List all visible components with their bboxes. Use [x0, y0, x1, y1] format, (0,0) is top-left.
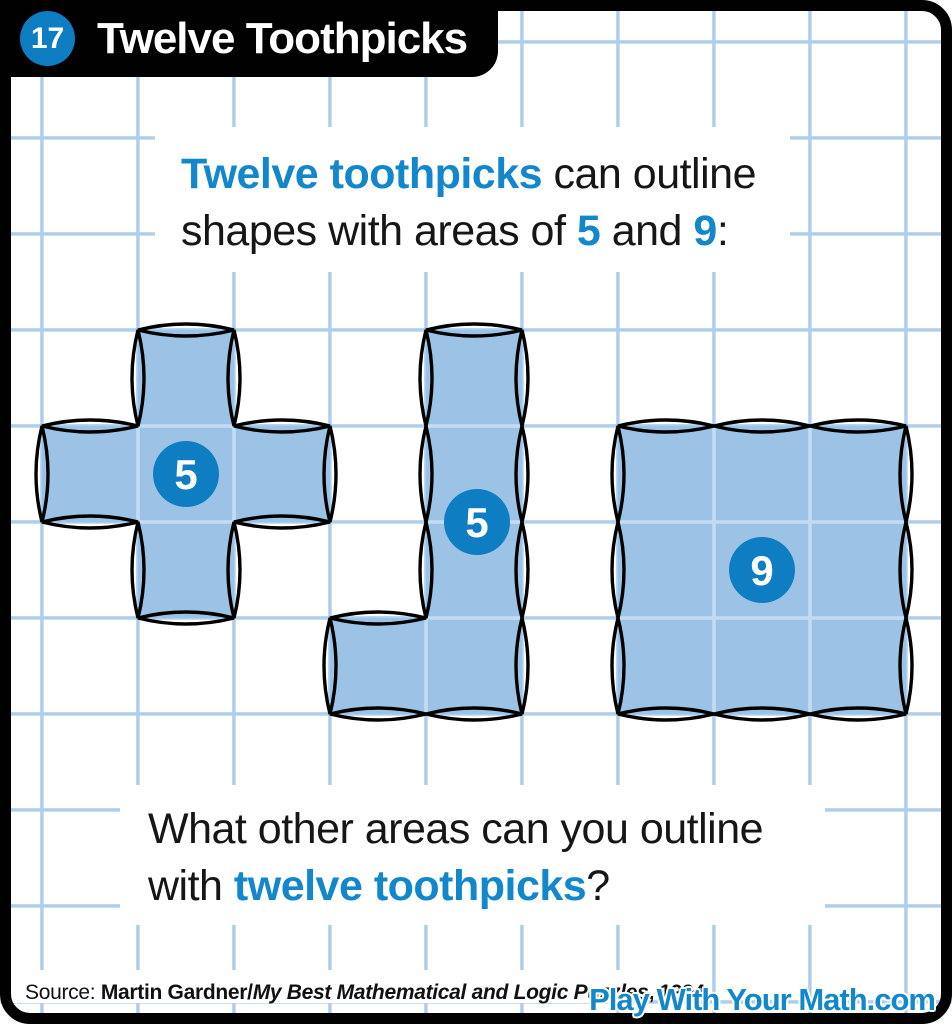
shape-cell: [618, 522, 714, 618]
question-text: What other areas can you outline with tw…: [148, 801, 763, 915]
puzzle-card: 559 Twelve toothpicks can outline shapes…: [0, 0, 952, 1024]
shape-cell: [618, 426, 714, 522]
shape-cell: [234, 426, 330, 522]
intro-line-1: Twelve toothpicks can outline: [181, 146, 756, 203]
text-segment: What other areas can you outline: [148, 805, 763, 853]
question-line-2: with twelve toothpicks?: [148, 858, 763, 915]
shape-l-pentomino: 5: [324, 324, 528, 720]
shape-cell: [42, 426, 138, 522]
brand-link[interactable]: Play With Your Math.com: [589, 982, 935, 1018]
question-line-1: What other areas can you outline: [148, 801, 763, 858]
text-segment: with: [148, 862, 234, 910]
puzzle-number-badge: 17: [20, 11, 75, 66]
shape-cell: [426, 618, 522, 714]
shape-cell: [714, 426, 810, 522]
intro-text: Twelve toothpicks can outline shapes wit…: [181, 146, 756, 260]
text-segment: ?: [586, 862, 609, 910]
text-segment: twelve toothpicks: [234, 862, 586, 910]
area-badge-label: 5: [174, 451, 197, 498]
area-badge-label: 9: [750, 547, 773, 594]
text-segment: and: [600, 207, 693, 255]
header-bar: 17 Twelve Toothpicks: [0, 0, 498, 77]
shape-three-by-three-square: 9: [612, 420, 912, 720]
text-segment: Source:: [25, 981, 101, 1004]
text-segment: can outline: [542, 150, 756, 198]
text-segment: 9: [693, 207, 716, 255]
page-title: Twelve Toothpicks: [97, 14, 467, 64]
shape-cell: [330, 618, 426, 714]
intro-line-2: shapes with areas of 5 and 9:: [181, 203, 756, 260]
shape-cell: [138, 522, 234, 618]
shape-cell: [426, 330, 522, 426]
shape-cell: [138, 330, 234, 426]
shape-cell: [810, 426, 906, 522]
shape-cell: [810, 618, 906, 714]
text-segment: Martin Gardner/: [101, 981, 253, 1004]
shape-cell: [810, 522, 906, 618]
shape-cell: [618, 618, 714, 714]
text-segment: :: [717, 207, 728, 255]
text-segment: Twelve toothpicks: [181, 150, 542, 198]
shape-cell: [714, 618, 810, 714]
area-badge-label: 5: [465, 499, 488, 546]
shape-plus-pentomino: 5: [36, 324, 336, 624]
text-segment: shapes with areas of: [181, 207, 577, 255]
text-segment: 5: [577, 207, 600, 255]
